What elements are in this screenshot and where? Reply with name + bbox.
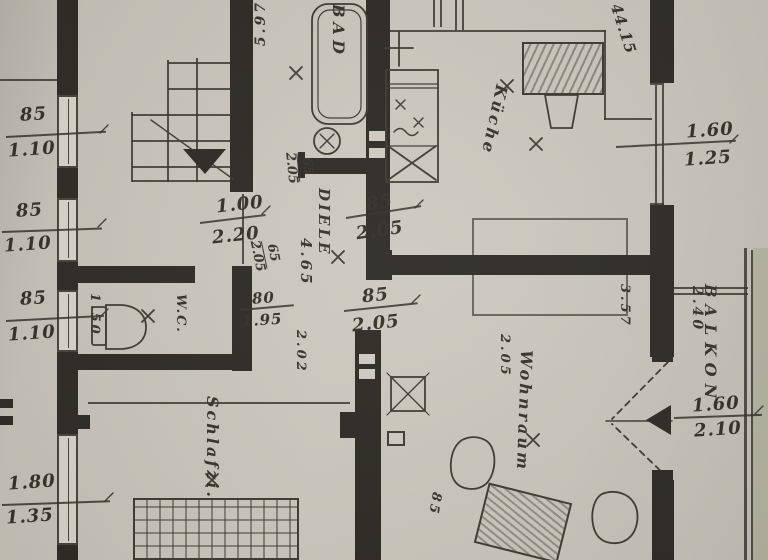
- kitchen-line-c: [455, 0, 457, 30]
- wall-segment: [650, 0, 674, 83]
- armchair: [451, 437, 495, 489]
- wall-segment: [652, 480, 674, 560]
- wall-segment: [57, 352, 78, 434]
- room-label-kueche: Küche: [479, 83, 510, 157]
- stair-tread: [132, 166, 234, 168]
- wall-segment: [232, 266, 252, 283]
- bed: [133, 498, 299, 560]
- dim-d2-top: 85: [361, 286, 390, 307]
- floor-plan: 85 1.10 85 1.10 85 1.10 1.80 1.35 1.00 2…: [0, 0, 768, 560]
- wall-segment: [57, 0, 78, 95]
- room-label-bad: BAD: [330, 4, 346, 59]
- party-wall-line: [0, 79, 57, 81]
- kitchen-counter: [522, 42, 604, 95]
- shaft-box-ticks: [387, 373, 429, 415]
- armchair: [592, 492, 637, 543]
- balcony-rail-right: [744, 248, 747, 560]
- dim-w4-top: 1.80: [7, 472, 56, 493]
- dim-bdoor-bot: 2.10: [693, 419, 742, 440]
- wall-segment: [392, 255, 650, 275]
- window: [57, 434, 78, 545]
- dim-line-w2: [2, 228, 102, 233]
- dim-line-w4: [2, 500, 110, 506]
- stair-tread: [132, 140, 234, 142]
- stair-stringer: [196, 58, 198, 182]
- dim-bad-door: 65 2.05: [281, 150, 315, 185]
- stair-base-line: [132, 180, 235, 182]
- stair-tread: [168, 88, 234, 90]
- drain-circle: [314, 128, 340, 154]
- x-mark: [332, 251, 344, 263]
- kitchen-right-line: [604, 30, 606, 120]
- room-label-schlafzimmer: Schlafzi.: [204, 396, 220, 500]
- kitchen-bottom-line: [604, 118, 652, 120]
- kitchen-line-d: [462, 0, 464, 30]
- dim-w4-bot: 1.35: [5, 506, 54, 527]
- stair-arrow: [183, 149, 226, 174]
- stair-stringer: [167, 60, 169, 182]
- wall-segment: [355, 330, 381, 560]
- room-size-diele: 4.65: [298, 238, 313, 287]
- radiator-tick: [0, 399, 13, 408]
- balcony-edge-strip: [753, 248, 768, 560]
- dim-top-right: 44.15: [608, 2, 638, 56]
- wall-segment: [57, 545, 78, 560]
- dim-bad-door-bot: 2.05: [281, 152, 299, 185]
- dim-d3-top: 80: [252, 290, 276, 307]
- window-sill: [650, 83, 664, 85]
- stair-tread: [132, 114, 234, 116]
- dim-d3-bot: 1.95: [242, 312, 283, 330]
- room-label-diele: DIELE: [316, 188, 331, 256]
- appliance-divider: [386, 84, 438, 88]
- dimension-arrow: [646, 405, 671, 435]
- shaft-box-cross: [391, 377, 425, 411]
- dim-w3-top: 85: [19, 289, 47, 309]
- x-mark: [530, 138, 542, 150]
- stove-marks: [394, 100, 423, 136]
- shaft-slot: [369, 148, 385, 158]
- shaft-box: [391, 377, 425, 411]
- dim-w2-top: 85: [15, 201, 43, 221]
- wall-segment: [78, 266, 195, 283]
- dim-rwin-top: 1.60: [685, 120, 734, 141]
- dim-w1-bot: 1.10: [7, 139, 56, 160]
- wall-stub: [340, 412, 356, 438]
- room-label-wohnraum: Wohnraum: [514, 350, 534, 472]
- wall-segment: [650, 205, 674, 357]
- dim-door-85: 85: [426, 491, 443, 517]
- shaft-slot: [369, 131, 385, 141]
- kitchen-sink: [545, 95, 578, 128]
- wall-segment: [78, 354, 252, 370]
- sofa-table: [474, 483, 572, 560]
- kitchen-top-line: [390, 30, 606, 32]
- radiator-tick: [0, 416, 13, 425]
- drain-cross: [320, 134, 334, 148]
- wall-segment: [57, 262, 78, 290]
- dim-d1-top: 85: [365, 192, 394, 214]
- dim-w3-bot: 1.10: [7, 323, 56, 344]
- dim-wohn-width: 3.57: [618, 284, 631, 328]
- window: [57, 290, 78, 352]
- wall-fixture: [387, 431, 405, 446]
- dim-w2-bot: 1.10: [3, 234, 52, 255]
- stair-tread: [168, 62, 234, 64]
- dim-d2-bot: 2.05: [351, 313, 400, 336]
- stair-stringer: [131, 112, 133, 182]
- shaft-slot: [359, 369, 375, 379]
- appliance-outline: [386, 70, 438, 182]
- door-hinge-nub: [76, 415, 90, 429]
- dim-line-w1: [6, 131, 106, 138]
- dim-wc-length: 1.50: [88, 293, 101, 337]
- kitchen-line-a: [433, 0, 435, 27]
- toilet-bowl: [106, 305, 146, 349]
- dim-wc-door: 65 2.05: [246, 236, 283, 273]
- stair-diagonal: [151, 120, 233, 179]
- dim-pass-height: 2.05: [498, 334, 511, 378]
- dim-w1-top: 85: [19, 105, 47, 125]
- shaft-slot: [359, 354, 375, 364]
- room-label-wc: W.C.: [174, 294, 187, 334]
- wall-segment: [230, 0, 253, 192]
- x-mark: [142, 310, 154, 322]
- sink-cross: [388, 146, 436, 180]
- balcony-door-swing: [612, 362, 668, 478]
- dim-entry-top: 1.00: [215, 194, 264, 217]
- x-mark: [290, 67, 302, 79]
- room-label-balkon: BALKON: [702, 284, 718, 405]
- kitchen-line-b: [440, 0, 442, 27]
- wall-segment: [57, 168, 78, 198]
- dim-bad-width: 5.97: [254, 0, 268, 46]
- dim-rwin-bot: 1.25: [683, 148, 732, 169]
- dim-diele-width: 2.02: [294, 330, 307, 374]
- wall-pillar: [366, 250, 392, 280]
- dim-d1-bot: 2.05: [355, 219, 405, 243]
